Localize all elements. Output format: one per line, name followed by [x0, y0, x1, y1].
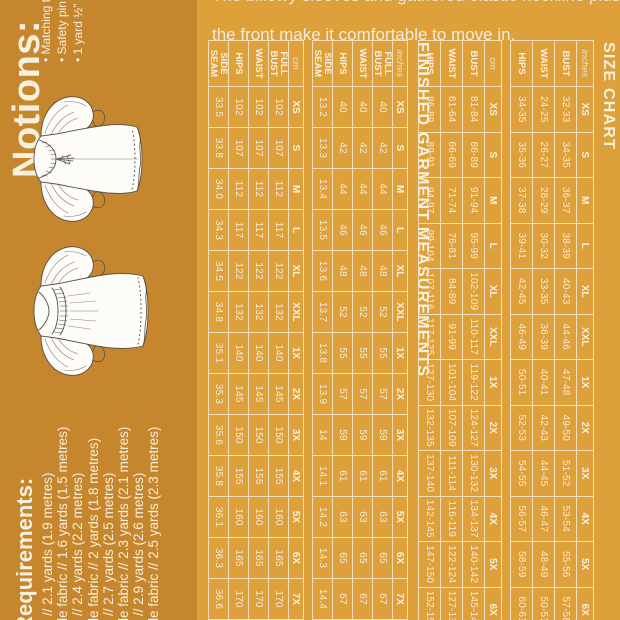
value-cell: 49-50: [554, 406, 576, 452]
value-cell: 33.5: [208, 87, 228, 128]
value-cell: 34.5: [208, 251, 228, 292]
value-cell: 119-122: [462, 360, 484, 406]
garment-front-view-line-drawing: [20, 88, 150, 232]
value-cell: 65: [372, 538, 392, 579]
value-cell: 61-64: [440, 87, 462, 133]
size-header-cell: 5X: [288, 497, 303, 538]
value-cell: 13.6: [312, 251, 332, 292]
value-cell: 112: [228, 169, 248, 210]
value-cell: 37-38: [510, 178, 532, 224]
value-cell: 46: [372, 210, 392, 251]
size-header-cell: 5X: [484, 542, 501, 588]
unit-cell: inches: [392, 41, 407, 87]
value-cell: 140: [248, 333, 268, 374]
value-cell: 81-84: [462, 87, 484, 133]
value-cell: 13.9: [312, 374, 332, 415]
value-cell: 86-89: [462, 133, 484, 179]
value-cell: 54-55: [510, 451, 532, 497]
value-cell: 40: [352, 87, 372, 128]
fabric-requirement-item: 45” wide fabric // 2.1 yards (1.9 metres…: [40, 356, 55, 620]
size-chart-table-inches: inchesXSSMLXLXXL1X2X3X4X5X6XBUST32-3334-…: [510, 40, 594, 620]
value-cell: 46: [332, 210, 352, 251]
value-cell: 52-53: [510, 406, 532, 452]
value-cell: 34.8: [208, 292, 228, 333]
value-cell: 48: [372, 251, 392, 292]
value-cell: 36.1: [208, 497, 228, 538]
size-header-cell: L: [392, 210, 407, 251]
value-cell: 122: [248, 251, 268, 292]
value-cell: 60-61: [510, 588, 532, 620]
value-cell: 61: [372, 456, 392, 497]
value-cell: 132-135: [418, 406, 440, 452]
value-cell: 155: [268, 456, 288, 497]
value-cell: 61: [332, 456, 352, 497]
value-cell: 165: [268, 538, 288, 579]
value-cell: 160: [268, 497, 288, 538]
size-header-cell: 3X: [392, 415, 407, 456]
size-header-cell: 3X: [576, 451, 593, 497]
garment-back-view-line-drawing: [18, 236, 152, 388]
size-header-cell: 5X: [392, 497, 407, 538]
value-cell: 42: [352, 128, 372, 169]
row-label-cell: HIPS: [510, 41, 532, 87]
value-cell: 91-99: [440, 315, 462, 361]
value-cell: 44: [332, 169, 352, 210]
value-cell: 35-36: [510, 133, 532, 179]
fabric-requirement-item: 45” wide fabric // 2.7 yards (2.5 metres…: [101, 356, 116, 620]
value-cell: 145: [248, 374, 268, 415]
row-label-cell: WAIST: [248, 41, 268, 87]
value-cell: 102: [268, 87, 288, 128]
value-cell: 117: [268, 210, 288, 251]
fabric-requirement-item: 45” wide fabric // 2.4 yards (2.2 metres…: [70, 356, 85, 620]
value-cell: 59: [352, 415, 372, 456]
value-cell: 155: [228, 456, 248, 497]
notions-item: Matching thread: [38, 0, 54, 62]
value-cell: 35.3: [208, 374, 228, 415]
value-cell: 102: [228, 87, 248, 128]
value-cell: 52: [352, 292, 372, 333]
value-cell: 132: [228, 292, 248, 333]
fabric-requirement-item: 60” wide fabric // 2.3 yards (2.1 metres…: [116, 356, 131, 620]
value-cell: 44-45: [532, 451, 554, 497]
value-cell: 67: [352, 579, 372, 620]
fabric-requirement-item: 60” wide fabric // 1.6 yards (1.5 metres…: [55, 356, 70, 620]
fabric-requirements-list: 45” wide fabric // 2.1 yards (1.9 metres…: [40, 356, 162, 620]
value-cell: 63: [352, 497, 372, 538]
value-cell: 112: [248, 169, 268, 210]
value-cell: 44: [372, 169, 392, 210]
value-cell: 47-48: [554, 360, 576, 406]
value-cell: 57: [332, 374, 352, 415]
value-cell: 14.1: [312, 456, 332, 497]
value-cell: 155: [248, 456, 268, 497]
size-header-cell: XXL: [576, 315, 593, 361]
value-cell: 36.3: [208, 538, 228, 579]
value-cell: 42: [332, 128, 352, 169]
row-label-cell: FULL BUST: [372, 41, 392, 87]
value-cell: 42-43: [532, 406, 554, 452]
value-cell: 57: [352, 374, 372, 415]
value-cell: 116-119: [440, 497, 462, 543]
value-cell: 127-130: [440, 588, 462, 620]
size-header-cell: XS: [288, 87, 303, 128]
row-label-cell: WAIST: [440, 41, 462, 87]
value-cell: 142-145: [418, 497, 440, 543]
size-chart-title: SIZE CHART: [599, 42, 617, 150]
unit-cell: inches: [576, 41, 593, 87]
size-header-cell: XS: [392, 87, 407, 128]
value-cell: 107: [228, 128, 248, 169]
value-cell: 150: [228, 415, 248, 456]
finished-garment-table-inches: inchesXSSMLXLXXL1X2X3X4X5X6X7XFULL BUST4…: [312, 40, 408, 620]
size-header-cell: XL: [576, 269, 593, 315]
size-header-cell: 1X: [392, 333, 407, 374]
value-cell: 52: [332, 292, 352, 333]
value-cell: 111-114: [440, 451, 462, 497]
value-cell: 40-43: [554, 269, 576, 315]
size-header-cell: XS: [576, 87, 593, 133]
value-cell: 130-132: [462, 451, 484, 497]
value-cell: 40-41: [532, 360, 554, 406]
value-cell: 50-51: [510, 360, 532, 406]
size-header-cell: XS: [484, 87, 501, 133]
value-cell: 53-54: [554, 497, 576, 543]
value-cell: 170: [248, 579, 268, 620]
value-cell: 48: [332, 251, 352, 292]
value-cell: 170: [228, 579, 248, 620]
size-header-cell: 6X: [288, 538, 303, 579]
row-label-cell: SIDE SEAM: [312, 41, 332, 87]
value-cell: 140-142: [462, 542, 484, 588]
row-label-cell: WAIST: [532, 41, 554, 87]
value-cell: 91-94: [462, 178, 484, 224]
value-cell: 51-52: [554, 451, 576, 497]
value-cell: 101-104: [440, 360, 462, 406]
value-cell: 71-74: [440, 178, 462, 224]
size-header-cell: 6X: [392, 538, 407, 579]
value-cell: 112: [268, 169, 288, 210]
value-cell: 32-33: [554, 87, 576, 133]
value-cell: 58-59: [510, 542, 532, 588]
size-header-cell: L: [288, 210, 303, 251]
size-header-cell: L: [484, 224, 501, 270]
value-cell: 57: [372, 374, 392, 415]
value-cell: 122-124: [440, 542, 462, 588]
size-header-cell: 2X: [484, 406, 501, 452]
value-cell: 34-35: [554, 133, 576, 179]
value-cell: 13.5: [312, 210, 332, 251]
value-cell: 34.3: [208, 210, 228, 251]
value-cell: 59: [332, 415, 352, 456]
size-header-cell: 3X: [484, 451, 501, 497]
value-cell: 140: [268, 333, 288, 374]
value-cell: 40: [372, 87, 392, 128]
value-cell: 55-56: [554, 542, 576, 588]
value-cell: 140: [228, 333, 248, 374]
size-header-cell: 2X: [288, 374, 303, 415]
row-label-cell: HIPS: [332, 41, 352, 87]
value-cell: 38-39: [554, 224, 576, 270]
value-cell: 102-109: [462, 269, 484, 315]
value-cell: 150: [248, 415, 268, 456]
row-label-cell: HIPS: [228, 41, 248, 87]
value-cell: 110-117: [462, 315, 484, 361]
value-cell: 66-69: [440, 133, 462, 179]
value-cell: 160: [228, 497, 248, 538]
value-cell: 84-89: [440, 269, 462, 315]
value-cell: 57-58: [554, 588, 576, 620]
size-header-cell: 7X: [288, 579, 303, 620]
size-header-cell: 4X: [484, 497, 501, 543]
measurement-tables-layer: SIZE CHART inchesXSSMLXLXXL1X2X3X4X5X6XB…: [197, 40, 620, 620]
size-header-cell: 1X: [576, 360, 593, 406]
value-cell: 36-39: [532, 315, 554, 361]
value-cell: 48-49: [532, 542, 554, 588]
size-header-cell: 2X: [576, 406, 593, 452]
row-label-cell: BUST: [554, 41, 576, 87]
value-cell: 46-47: [532, 497, 554, 543]
finished-garment-table-cm: cmXSSMLXLXXL1X2X3X4X5X6X7XFULL BUST10210…: [208, 40, 304, 620]
value-cell: 124-127: [462, 406, 484, 452]
size-header-cell: XXL: [484, 315, 501, 361]
size-header-cell: 4X: [288, 456, 303, 497]
value-cell: 44: [352, 169, 372, 210]
value-cell: 67: [332, 579, 352, 620]
fabric-requirement-item: 45” wide fabric // 2.9 yards (2.6 metres…: [131, 356, 146, 620]
value-cell: 107: [268, 128, 288, 169]
size-header-cell: XL: [484, 269, 501, 315]
value-cell: 39-41: [510, 224, 532, 270]
value-cell: 67: [372, 579, 392, 620]
value-cell: 61: [352, 456, 372, 497]
pattern-back-cover: Notions: Matching thread Safety pin or b…: [0, 0, 620, 620]
value-cell: 13.7: [312, 292, 332, 333]
value-cell: 48: [352, 251, 372, 292]
value-cell: 165: [248, 538, 268, 579]
value-cell: 107-109: [440, 406, 462, 452]
value-cell: 145: [228, 374, 248, 415]
value-cell: 137-140: [418, 451, 440, 497]
value-cell: 35.1: [208, 333, 228, 374]
size-header-cell: XXL: [392, 292, 407, 333]
size-header-cell: S: [392, 128, 407, 169]
row-label-cell: WAIST: [352, 41, 372, 87]
size-header-cell: XL: [392, 251, 407, 292]
value-cell: 13.4: [312, 169, 332, 210]
size-header-cell: 4X: [392, 456, 407, 497]
value-cell: 30-32: [532, 224, 554, 270]
value-cell: 55: [372, 333, 392, 374]
value-cell: 14.2: [312, 497, 332, 538]
value-cell: 44-46: [554, 315, 576, 361]
value-cell: 13.3: [312, 128, 332, 169]
value-cell: 59: [372, 415, 392, 456]
value-cell: 160: [248, 497, 268, 538]
value-cell: 76-81: [440, 224, 462, 270]
value-cell: 95-99: [462, 224, 484, 270]
size-header-cell: 7X: [392, 579, 407, 620]
notions-item: Safety pin or bodkin: [54, 0, 70, 62]
value-cell: 122: [228, 251, 248, 292]
value-cell: 26-27: [532, 133, 554, 179]
row-label-cell: SIDE SEAM: [208, 41, 228, 87]
value-cell: 13.8: [312, 333, 332, 374]
value-cell: 55: [332, 333, 352, 374]
value-cell: 56-57: [510, 497, 532, 543]
value-cell: 28-29: [532, 178, 554, 224]
value-cell: 55: [352, 333, 372, 374]
size-header-cell: 1X: [484, 360, 501, 406]
value-cell: 134-137: [462, 497, 484, 543]
size-header-cell: 5X: [576, 542, 593, 588]
size-header-cell: 6X: [576, 588, 593, 620]
value-cell: 35.6: [208, 415, 228, 456]
size-header-cell: S: [484, 133, 501, 179]
value-cell: 107: [248, 128, 268, 169]
value-cell: 50-51: [532, 588, 554, 620]
value-cell: 34.0: [208, 169, 228, 210]
value-cell: 36.6: [208, 579, 228, 620]
fabric-requirement-item: 60” wide fabric // 2 yards (1.8 metres): [86, 356, 101, 620]
value-cell: 14.3: [312, 538, 332, 579]
unit-cell: cm: [288, 41, 303, 87]
value-cell: 14: [312, 415, 332, 456]
value-cell: 152-155: [418, 588, 440, 620]
value-cell: 165: [228, 538, 248, 579]
size-header-cell: S: [288, 128, 303, 169]
value-cell: 40: [332, 87, 352, 128]
value-cell: 33.8: [208, 128, 228, 169]
notions-list: Matching thread Safety pin or bodkin 1 y…: [38, 0, 86, 62]
value-cell: 42: [372, 128, 392, 169]
size-header-cell: XXL: [288, 292, 303, 333]
size-header-cell: XL: [288, 251, 303, 292]
value-cell: 42-45: [510, 269, 532, 315]
value-cell: 35.8: [208, 456, 228, 497]
size-header-cell: M: [576, 178, 593, 224]
row-label-cell: FULL BUST: [268, 41, 288, 87]
value-cell: 46: [352, 210, 372, 251]
value-cell: 132: [248, 292, 268, 333]
size-header-cell: 6X: [484, 588, 501, 620]
value-cell: 65: [352, 538, 372, 579]
value-cell: 14.4: [312, 579, 332, 620]
value-cell: 63: [372, 497, 392, 538]
value-cell: 102: [248, 87, 268, 128]
value-cell: 65: [332, 538, 352, 579]
size-header-cell: 2X: [392, 374, 407, 415]
description-line-clipped: The billowy sleeves and gathered elastic…: [212, 0, 620, 6]
size-header-cell: 1X: [288, 333, 303, 374]
value-cell: 46-49: [510, 315, 532, 361]
value-cell: 117: [248, 210, 268, 251]
size-header-cell: M: [484, 178, 501, 224]
value-cell: 122: [268, 251, 288, 292]
notions-item: 1 yard ½” elastic: [70, 0, 86, 62]
size-header-cell: 3X: [288, 415, 303, 456]
value-cell: 150: [268, 415, 288, 456]
value-cell: 36-37: [554, 178, 576, 224]
value-cell: 52: [372, 292, 392, 333]
row-label-cell: BUST: [462, 41, 484, 87]
finished-garment-title: FINISHED GARMENT MEASUREMENTS: [413, 42, 431, 377]
size-header-cell: M: [288, 169, 303, 210]
value-cell: 147-150: [418, 542, 440, 588]
value-cell: 117: [228, 210, 248, 251]
fabric-requirement-item: 60” wide fabric // 2.5 yards (2.3 metres…: [146, 356, 161, 620]
value-cell: 170: [268, 579, 288, 620]
value-cell: 33-35: [532, 269, 554, 315]
size-header-cell: 4X: [576, 497, 593, 543]
value-cell: 34-35: [510, 87, 532, 133]
size-header-cell: S: [576, 133, 593, 179]
value-cell: 132: [268, 292, 288, 333]
size-header-cell: L: [576, 224, 593, 270]
value-cell: 63: [332, 497, 352, 538]
value-cell: 145-147: [462, 588, 484, 620]
value-cell: 145: [268, 374, 288, 415]
unit-cell: cm: [484, 41, 501, 87]
size-header-cell: M: [392, 169, 407, 210]
value-cell: 13.2: [312, 87, 332, 128]
value-cell: 24-25: [532, 87, 554, 133]
